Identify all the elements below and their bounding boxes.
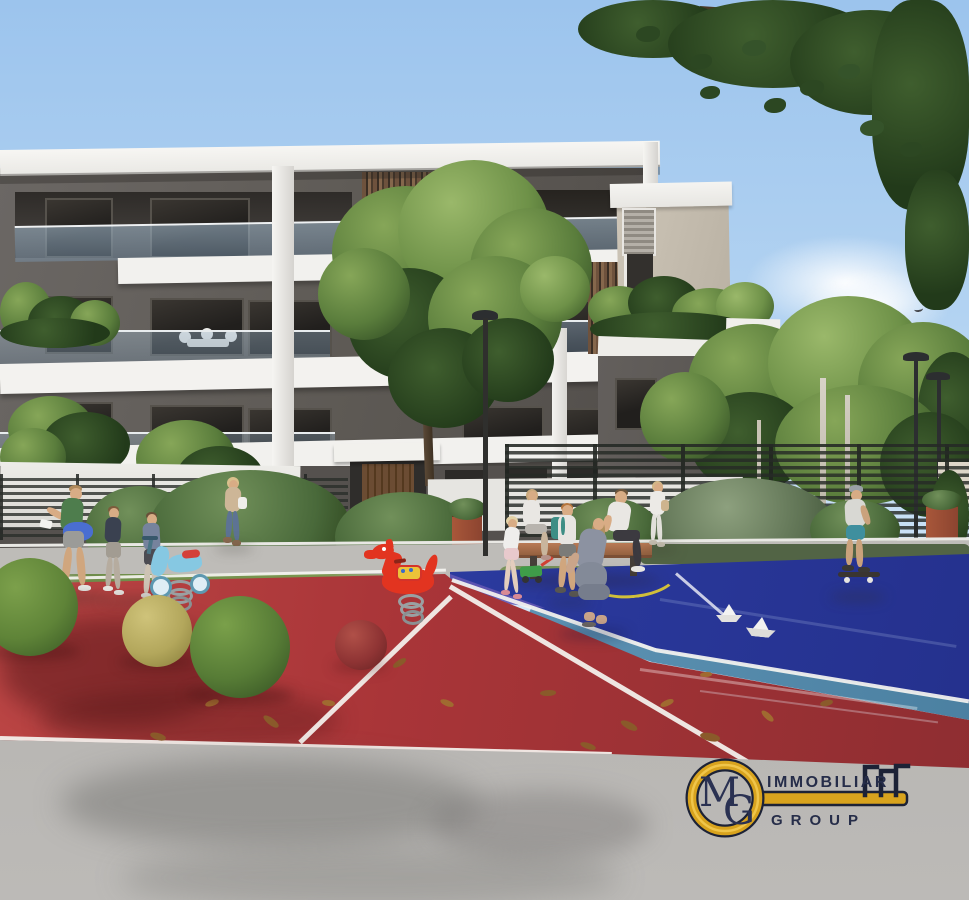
real-estate-rendering: M G IMMOBILIAR GROUP (0, 0, 969, 900)
leaf (439, 697, 454, 708)
leaf (820, 699, 834, 707)
pavement-shadow (60, 758, 480, 848)
sphere-red (335, 620, 387, 670)
sphere-olive (122, 595, 192, 667)
leaf (699, 731, 720, 744)
key-icon (645, 752, 945, 848)
leaf (760, 709, 775, 724)
leaf (262, 713, 280, 730)
logo-line2: GROUP (771, 812, 866, 829)
leaf (392, 657, 408, 670)
leaf (659, 698, 674, 708)
leaf (579, 740, 596, 752)
leaf (540, 690, 556, 696)
watermark-logo: M G IMMOBILIAR GROUP (645, 752, 945, 848)
logo-line1: IMMOBILIAR (767, 774, 889, 792)
logo-monogram-g: G (723, 788, 755, 834)
pavement-shadow (120, 848, 620, 900)
sphere-green-large (190, 596, 290, 698)
leaf (700, 672, 712, 677)
leaf (149, 730, 166, 742)
leaf (322, 699, 336, 707)
leaf (619, 718, 638, 733)
